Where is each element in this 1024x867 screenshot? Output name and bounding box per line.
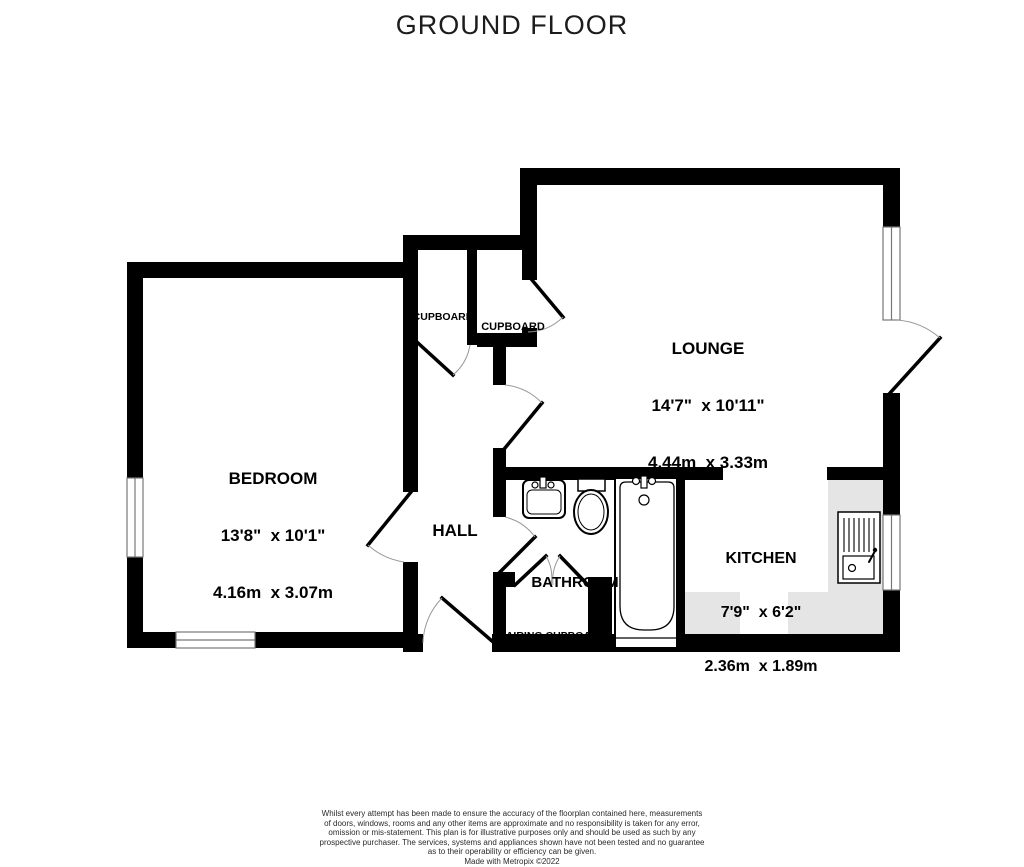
door-cupboard-left xyxy=(418,343,470,375)
label-bathroom: BATHROOM xyxy=(495,535,655,611)
window-kitchen xyxy=(883,515,900,590)
disclaimer-line: omission or mis-statement. This plan is … xyxy=(0,828,1024,838)
lounge-dimensions-imperial: 14'7" x 10'11" xyxy=(588,396,828,415)
cupboard-right-name: CUPBOARD xyxy=(453,321,573,333)
label-bedroom: BEDROOM 13'8" x 10'1" 4.16m x 3.07m xyxy=(153,431,393,621)
bedroom-name: BEDROOM xyxy=(153,469,393,488)
lounge-name: LOUNGE xyxy=(588,339,828,358)
disclaimer-line: as to their operability or efficiency ca… xyxy=(0,847,1024,857)
door-hall-lounge xyxy=(505,385,542,448)
kitchen-dimensions-imperial: 7'9" x 6'2" xyxy=(641,604,881,622)
disclaimer-line: prospective purchaser. The services, sys… xyxy=(0,838,1024,848)
hall-name: HALL xyxy=(405,521,505,540)
basin-fixture xyxy=(523,477,565,518)
label-cupboard-right: CUPBOARD xyxy=(453,297,573,345)
disclaimer-credit: Made with Metropix ©2022 xyxy=(0,857,1024,867)
floorplan-page: { "title": "GROUND FLOOR", "rooms": { "b… xyxy=(0,0,1024,861)
bathroom-name: BATHROOM xyxy=(495,573,655,592)
disclaimer-line: of doors, windows, rooms and any other i… xyxy=(0,819,1024,829)
label-hall: HALL xyxy=(405,483,505,559)
disclaimer-text: Whilst every attempt has been made to en… xyxy=(0,809,1024,867)
label-airing-cupboard: AIRING CUPBOARD xyxy=(476,606,636,654)
disclaimer-line: Whilst every attempt has been made to en… xyxy=(0,809,1024,819)
kitchen-dimensions-metric: 2.36m x 1.89m xyxy=(641,658,881,676)
label-lounge: LOUNGE 14'7" x 10'11" 4.44m x 3.33m xyxy=(588,301,828,491)
bedroom-dimensions-metric: 4.16m x 3.07m xyxy=(153,583,393,602)
window-bedroom-side xyxy=(127,478,143,557)
label-kitchen: KITCHEN 7'9" x 6'2" 2.36m x 1.89m xyxy=(641,514,881,694)
kitchen-name: KITCHEN xyxy=(641,550,881,568)
door-patio xyxy=(890,320,940,393)
window-bedroom-front xyxy=(176,632,255,648)
bedroom-dimensions-imperial: 13'8" x 10'1" xyxy=(153,526,393,545)
airing-cupboard-name: AIRING CUPBOARD xyxy=(476,630,636,642)
lounge-dimensions-metric: 4.44m x 3.33m xyxy=(588,453,828,472)
window-lounge xyxy=(883,227,900,320)
